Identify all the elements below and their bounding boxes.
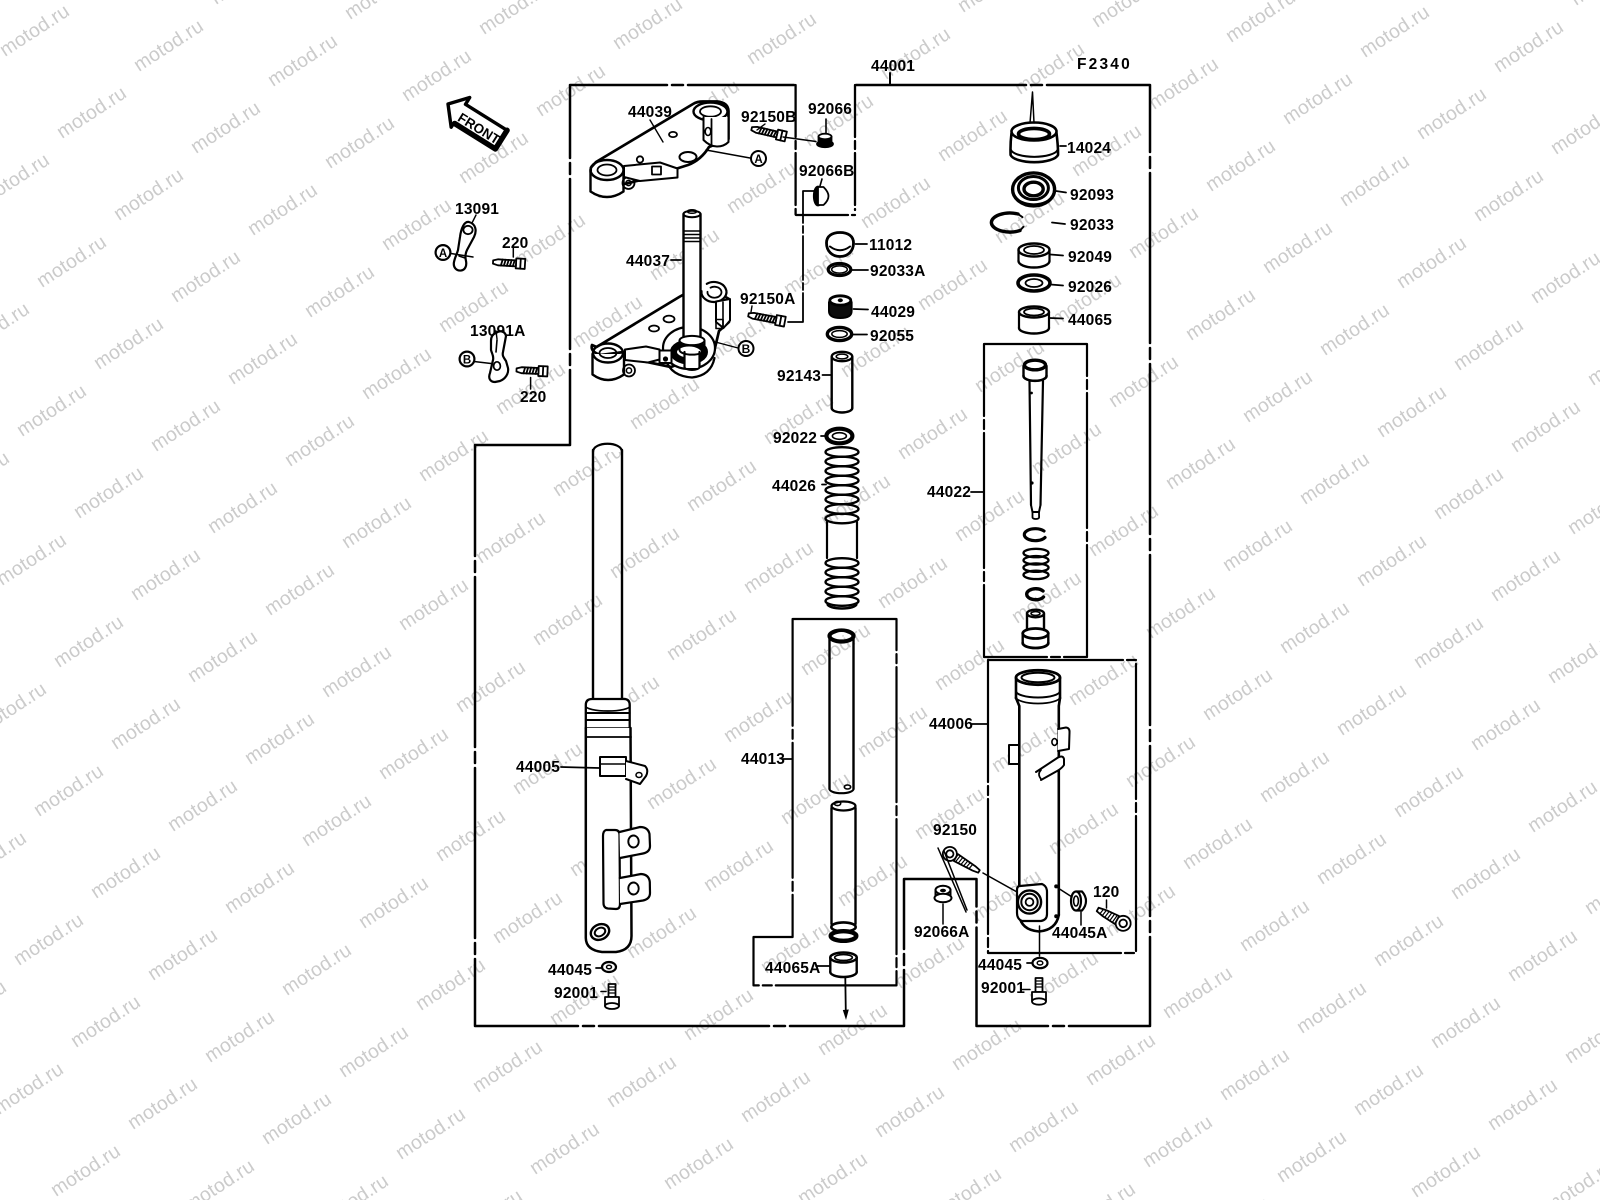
svg-text:44013: 44013 xyxy=(741,751,785,768)
svg-text:92022: 92022 xyxy=(773,430,817,447)
svg-text:92066: 92066 xyxy=(808,101,852,118)
svg-text:B: B xyxy=(742,342,751,356)
svg-text:44022: 44022 xyxy=(927,484,971,501)
svg-text:92143: 92143 xyxy=(777,368,821,385)
svg-text:92150A: 92150A xyxy=(740,291,796,308)
svg-text:44065: 44065 xyxy=(1068,312,1112,329)
svg-text:B: B xyxy=(463,355,471,367)
svg-text:220: 220 xyxy=(520,389,546,406)
svg-text:A: A xyxy=(439,248,447,260)
svg-text:92049: 92049 xyxy=(1068,249,1112,266)
svg-text:44026: 44026 xyxy=(772,478,816,495)
svg-text:11012: 11012 xyxy=(869,237,912,254)
svg-text:A: A xyxy=(754,154,762,166)
svg-text:44029: 44029 xyxy=(871,304,915,321)
svg-text:92026: 92026 xyxy=(1068,279,1112,296)
svg-text:92001: 92001 xyxy=(554,985,598,1002)
svg-text:44045: 44045 xyxy=(978,957,1022,974)
svg-text:44001: 44001 xyxy=(871,58,915,75)
svg-text:92066B: 92066B xyxy=(799,163,855,180)
svg-text:92001: 92001 xyxy=(981,980,1025,997)
svg-text:220: 220 xyxy=(502,235,528,252)
svg-text:44006: 44006 xyxy=(929,716,973,733)
svg-text:13091: 13091 xyxy=(455,201,499,218)
svg-text:F2340: F2340 xyxy=(1077,56,1132,73)
svg-text:120: 120 xyxy=(1093,884,1119,901)
svg-text:14024: 14024 xyxy=(1067,140,1111,157)
svg-text:92033A: 92033A xyxy=(870,263,926,280)
svg-text:44005: 44005 xyxy=(516,759,560,776)
svg-text:44065A: 44065A xyxy=(765,960,821,977)
svg-text:92033: 92033 xyxy=(1070,217,1114,234)
svg-text:44037: 44037 xyxy=(626,253,670,270)
svg-text:92055: 92055 xyxy=(870,328,914,345)
svg-text:92093: 92093 xyxy=(1070,187,1114,204)
svg-text:92066A: 92066A xyxy=(914,924,970,941)
svg-text:44039: 44039 xyxy=(628,104,672,121)
svg-text:44045: 44045 xyxy=(548,962,592,979)
svg-text:92150B: 92150B xyxy=(741,109,797,126)
svg-text:92150: 92150 xyxy=(933,822,977,839)
svg-text:44045A: 44045A xyxy=(1052,925,1108,942)
